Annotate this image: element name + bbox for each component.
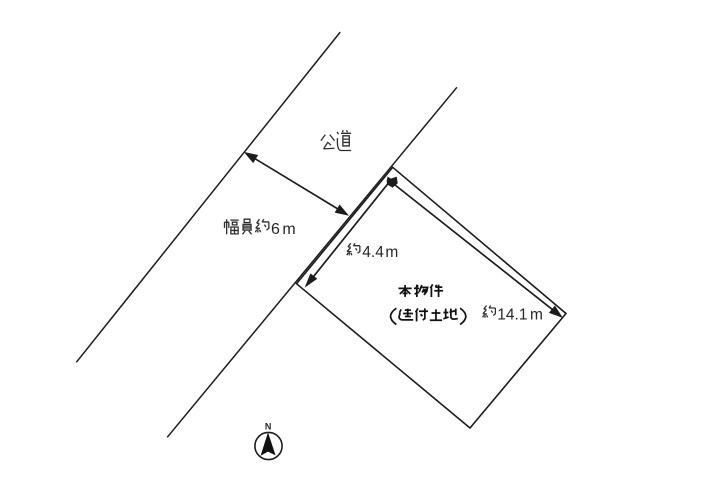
- svg-text:14.1m: 14.1m: [497, 306, 543, 323]
- svg-text:6m: 6m: [271, 221, 296, 238]
- svg-text:N: N: [265, 421, 272, 431]
- svg-text:4.4m: 4.4m: [362, 244, 398, 261]
